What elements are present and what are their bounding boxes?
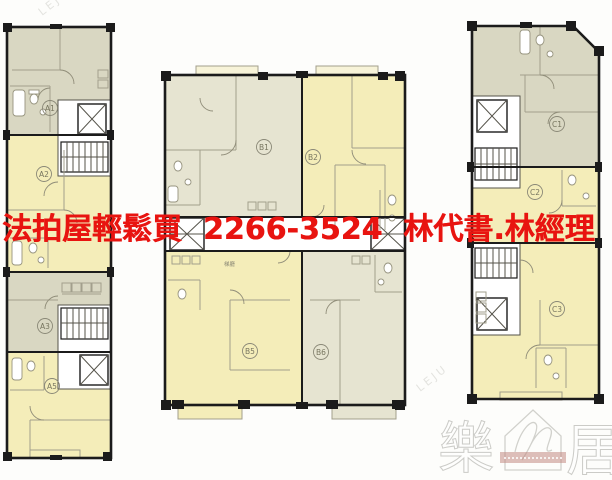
left-core-upper (58, 100, 111, 176)
svg-text:C1: C1 (552, 120, 562, 129)
svg-text:B2: B2 (308, 153, 318, 162)
svg-text:A5: A5 (47, 382, 57, 391)
right-core-upper (472, 96, 520, 188)
diagonal-watermark-text: LEJU (414, 362, 451, 395)
watermark-char-left: 樂 (438, 417, 494, 480)
svg-text:A3: A3 (40, 322, 50, 331)
svg-text:B5: B5 (245, 347, 255, 356)
ad-overlay-text: 法拍屋輕鬆買 2266-3524 林代書.林經理 (2, 211, 612, 248)
unit-B1-area (165, 75, 302, 217)
svg-text:A2: A2 (39, 170, 49, 179)
svg-text:B1: B1 (259, 143, 269, 152)
stairs-icon (475, 248, 517, 278)
stairs-icon (61, 308, 108, 339)
left-core-lower (58, 305, 111, 389)
stairs-icon (475, 148, 517, 180)
unit-B5-area (165, 251, 302, 405)
svg-text:C2: C2 (530, 188, 540, 197)
watermark-char-right: 居 (566, 419, 612, 480)
elevator-icon (80, 355, 108, 385)
svg-text:B6: B6 (316, 348, 326, 357)
leju-watermark: 樂 居 (438, 410, 612, 480)
lobby-label: 梯廳 (224, 260, 236, 268)
svg-text:C3: C3 (552, 305, 562, 314)
diagonal-watermark-text: LEJU (36, 0, 73, 18)
unit-B6-area (302, 251, 405, 405)
elevator-icon (78, 104, 106, 134)
stairs-icon (61, 142, 108, 172)
right-core-lower (472, 243, 520, 335)
svg-text:A1: A1 (45, 104, 55, 113)
elevator-icon (477, 100, 507, 132)
leju-logo-icon (500, 410, 566, 470)
floorplan-page: LEJU LEJU LEJU LEJU (0, 0, 612, 480)
